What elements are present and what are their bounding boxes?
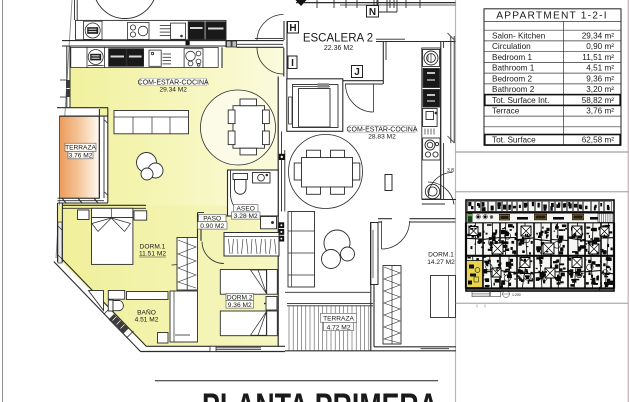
svg-text:ESCALERA 2: ESCALERA 2 xyxy=(303,33,373,45)
svg-text:ASEO: ASEO xyxy=(237,206,255,213)
svg-text:DORM.2: DORM.2 xyxy=(227,294,253,301)
svg-text:Circulation: Circulation xyxy=(492,42,531,51)
svg-text:PASO: PASO xyxy=(203,215,221,222)
svg-text:Salon- Kitchen: Salon- Kitchen xyxy=(492,31,546,40)
svg-text:DORM.1: DORM.1 xyxy=(428,251,454,258)
svg-text:DORM.1: DORM.1 xyxy=(140,243,166,250)
svg-text:Tot. Surface: Tot. Surface xyxy=(492,136,536,145)
svg-text:58,82 m²: 58,82 m² xyxy=(582,96,615,105)
svg-text:9.36 M2: 9.36 M2 xyxy=(228,302,252,309)
svg-text:Bathroom 1: Bathroom 1 xyxy=(492,64,535,73)
svg-text:29.34 M2: 29.34 M2 xyxy=(159,86,187,93)
svg-text:29,34 m²: 29,34 m² xyxy=(582,31,615,40)
svg-text:Bathroom 2: Bathroom 2 xyxy=(492,85,535,94)
svg-text:Bedroom 2: Bedroom 2 xyxy=(492,74,532,83)
svg-text:3.28 M2: 3.28 M2 xyxy=(234,213,258,220)
svg-text:TERRAZA: TERRAZA xyxy=(323,315,354,322)
svg-text:11,51 m²: 11,51 m² xyxy=(582,53,614,62)
svg-text:22.36 M2: 22.36 M2 xyxy=(324,45,353,52)
svg-text:9,36 m²: 9,36 m² xyxy=(586,74,614,83)
svg-text:H: H xyxy=(289,23,296,34)
svg-text:Terrace: Terrace xyxy=(492,107,520,116)
svg-text:28.83 M2: 28.83 M2 xyxy=(368,134,396,141)
svg-text:3,8: 3,8 xyxy=(447,168,454,174)
svg-text:Bedroom 1: Bedroom 1 xyxy=(492,53,532,62)
svg-text:J: J xyxy=(354,67,360,78)
svg-text:3.76 M2: 3.76 M2 xyxy=(69,153,93,160)
svg-text:0,90 m²: 0,90 m² xyxy=(586,42,614,51)
svg-text:COM-ESTAR-COCINA: COM-ESTAR-COCINA xyxy=(346,126,417,133)
svg-text:11.51 M2: 11.51 M2 xyxy=(139,251,166,258)
svg-text:N: N xyxy=(369,7,376,18)
svg-text:3,20 m²: 3,20 m² xyxy=(586,85,614,94)
svg-text:BAÑO: BAÑO xyxy=(137,307,156,316)
svg-text:APPARTMENT 1-2-I: APPARTMENT 1-2-I xyxy=(496,11,607,22)
svg-text:14.27 M2: 14.27 M2 xyxy=(427,259,455,266)
svg-text:I: I xyxy=(291,58,294,69)
svg-text:PLANTA PRIMERA: PLANTA PRIMERA xyxy=(202,386,438,402)
svg-text:4.72 M2: 4.72 M2 xyxy=(327,324,351,331)
svg-text:TERRAZA: TERRAZA xyxy=(65,145,96,152)
svg-text:3,76 m²: 3,76 m² xyxy=(586,107,614,116)
svg-text:Tot. Surface Int.: Tot. Surface Int. xyxy=(492,96,549,105)
svg-text:COM-ESTAR-COCINA: COM-ESTAR-COCINA xyxy=(138,79,209,86)
svg-text:62,58 m²: 62,58 m² xyxy=(582,136,615,145)
svg-text:0.90 M2: 0.90 M2 xyxy=(200,223,224,230)
svg-text:4.51 M2: 4.51 M2 xyxy=(135,317,159,324)
svg-text:4,51 m²: 4,51 m² xyxy=(586,64,614,73)
svg-text:1:200: 1:200 xyxy=(512,293,521,297)
